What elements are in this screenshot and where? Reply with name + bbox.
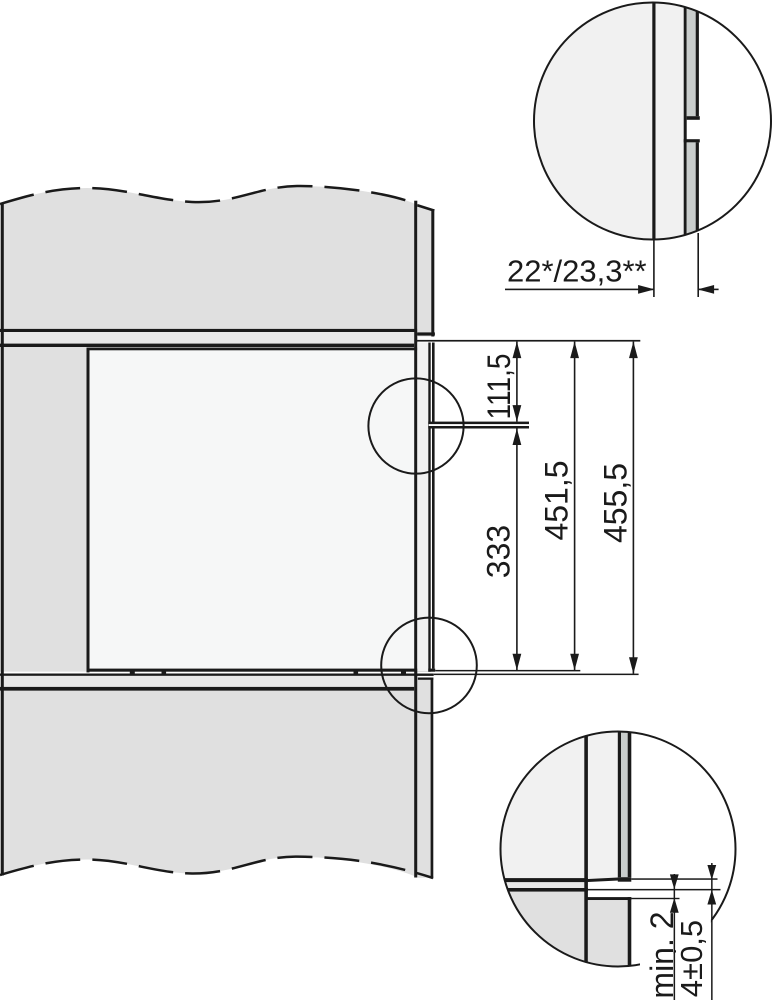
svg-text:451,5: 451,5 [539, 460, 575, 540]
svg-text:455,5: 455,5 [598, 463, 634, 543]
svg-text:111,5: 111,5 [481, 354, 517, 420]
svg-text:333: 333 [481, 525, 517, 578]
svg-text:22*/23,3**: 22*/23,3** [507, 254, 647, 289]
svg-text:4±0,5: 4±0,5 [674, 920, 709, 997]
